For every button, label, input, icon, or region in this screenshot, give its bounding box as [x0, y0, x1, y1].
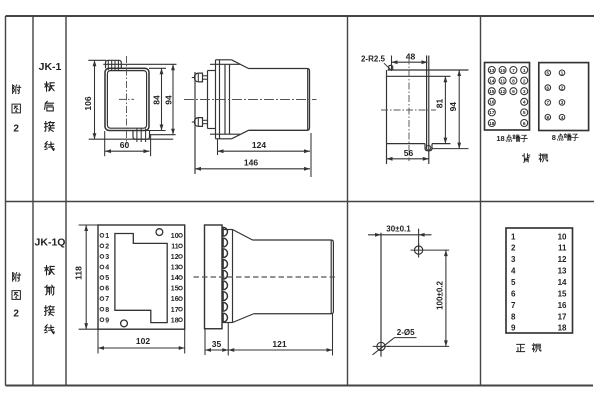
svg-text:2-R2.5: 2-R2.5 — [361, 55, 386, 64]
svg-text:94: 94 — [448, 102, 458, 112]
svg-text:15: 15 — [558, 289, 567, 298]
svg-text:8: 8 — [552, 133, 556, 142]
svg-text:2-Ø5: 2-Ø5 — [397, 328, 415, 337]
svg-text:18: 18 — [171, 317, 179, 324]
svg-text:14: 14 — [558, 278, 567, 287]
svg-text:11: 11 — [500, 78, 505, 84]
svg-text:14: 14 — [489, 78, 495, 84]
svg-text:11: 11 — [171, 243, 179, 250]
svg-text:3: 3 — [511, 255, 516, 264]
svg-text:2: 2 — [523, 78, 526, 84]
svg-text:13: 13 — [171, 265, 179, 272]
svg-text:81: 81 — [435, 99, 445, 109]
svg-text:3: 3 — [105, 254, 109, 261]
svg-text:18: 18 — [558, 324, 567, 333]
svg-text:16: 16 — [171, 296, 179, 303]
svg-text:9: 9 — [105, 317, 109, 324]
svg-text:10: 10 — [500, 68, 506, 74]
svg-text:12: 12 — [171, 254, 179, 261]
svg-text:14: 14 — [171, 275, 179, 282]
svg-text:5: 5 — [523, 110, 526, 116]
svg-text:118: 118 — [74, 266, 84, 280]
svg-text:13: 13 — [558, 267, 567, 276]
svg-text:8: 8 — [512, 78, 515, 84]
svg-text:9: 9 — [511, 324, 516, 333]
svg-text:7: 7 — [511, 301, 516, 310]
svg-text:4: 4 — [511, 267, 516, 276]
svg-text:2: 2 — [13, 309, 19, 320]
svg-text:35: 35 — [212, 339, 222, 349]
svg-text:124: 124 — [252, 140, 266, 150]
svg-text:1: 1 — [511, 232, 516, 241]
svg-text:146: 146 — [244, 158, 258, 168]
svg-text:11: 11 — [558, 244, 567, 253]
svg-text:121: 121 — [272, 339, 286, 349]
svg-text:12: 12 — [500, 89, 506, 95]
svg-text:56: 56 — [404, 148, 414, 158]
svg-text:8: 8 — [511, 312, 516, 321]
svg-text:15: 15 — [171, 286, 179, 293]
svg-text:JK-1Q: JK-1Q — [35, 237, 66, 249]
svg-text:2: 2 — [511, 244, 516, 253]
svg-text:100±0.2: 100±0.2 — [435, 281, 444, 310]
svg-text:2: 2 — [13, 124, 19, 135]
svg-text:10: 10 — [558, 232, 567, 241]
svg-text:18: 18 — [489, 121, 495, 127]
svg-text:2: 2 — [105, 243, 109, 250]
svg-text:84: 84 — [152, 95, 162, 105]
svg-text:7: 7 — [105, 296, 109, 303]
svg-text:12: 12 — [558, 255, 567, 264]
svg-text:JK-1: JK-1 — [39, 61, 62, 73]
svg-text:6: 6 — [105, 286, 109, 293]
svg-text:1: 1 — [523, 68, 526, 74]
svg-text:17: 17 — [171, 307, 179, 314]
svg-text:4: 4 — [523, 100, 526, 106]
svg-text:16: 16 — [558, 301, 567, 310]
svg-text:15: 15 — [489, 89, 495, 95]
svg-text:8: 8 — [105, 307, 109, 314]
svg-text:3: 3 — [523, 89, 526, 95]
svg-text:13: 13 — [489, 68, 495, 74]
svg-text:94: 94 — [163, 95, 173, 105]
svg-text:18: 18 — [496, 134, 504, 143]
svg-text:5: 5 — [105, 275, 109, 282]
svg-text:106: 106 — [83, 96, 93, 110]
svg-text:7: 7 — [512, 68, 515, 74]
svg-text:5: 5 — [511, 278, 516, 287]
svg-text:6: 6 — [511, 289, 516, 298]
svg-text:6: 6 — [523, 121, 526, 127]
svg-text:48: 48 — [406, 52, 416, 62]
svg-text:102: 102 — [136, 336, 150, 346]
svg-text:16: 16 — [489, 100, 495, 106]
svg-text:17: 17 — [558, 312, 567, 321]
svg-text:9: 9 — [512, 89, 515, 95]
svg-text:30±0.1: 30±0.1 — [386, 224, 411, 233]
svg-text:60: 60 — [120, 140, 130, 150]
svg-text:4: 4 — [105, 265, 109, 272]
svg-text:17: 17 — [489, 110, 495, 116]
svg-text:10: 10 — [171, 233, 179, 240]
svg-text:1: 1 — [105, 233, 109, 240]
